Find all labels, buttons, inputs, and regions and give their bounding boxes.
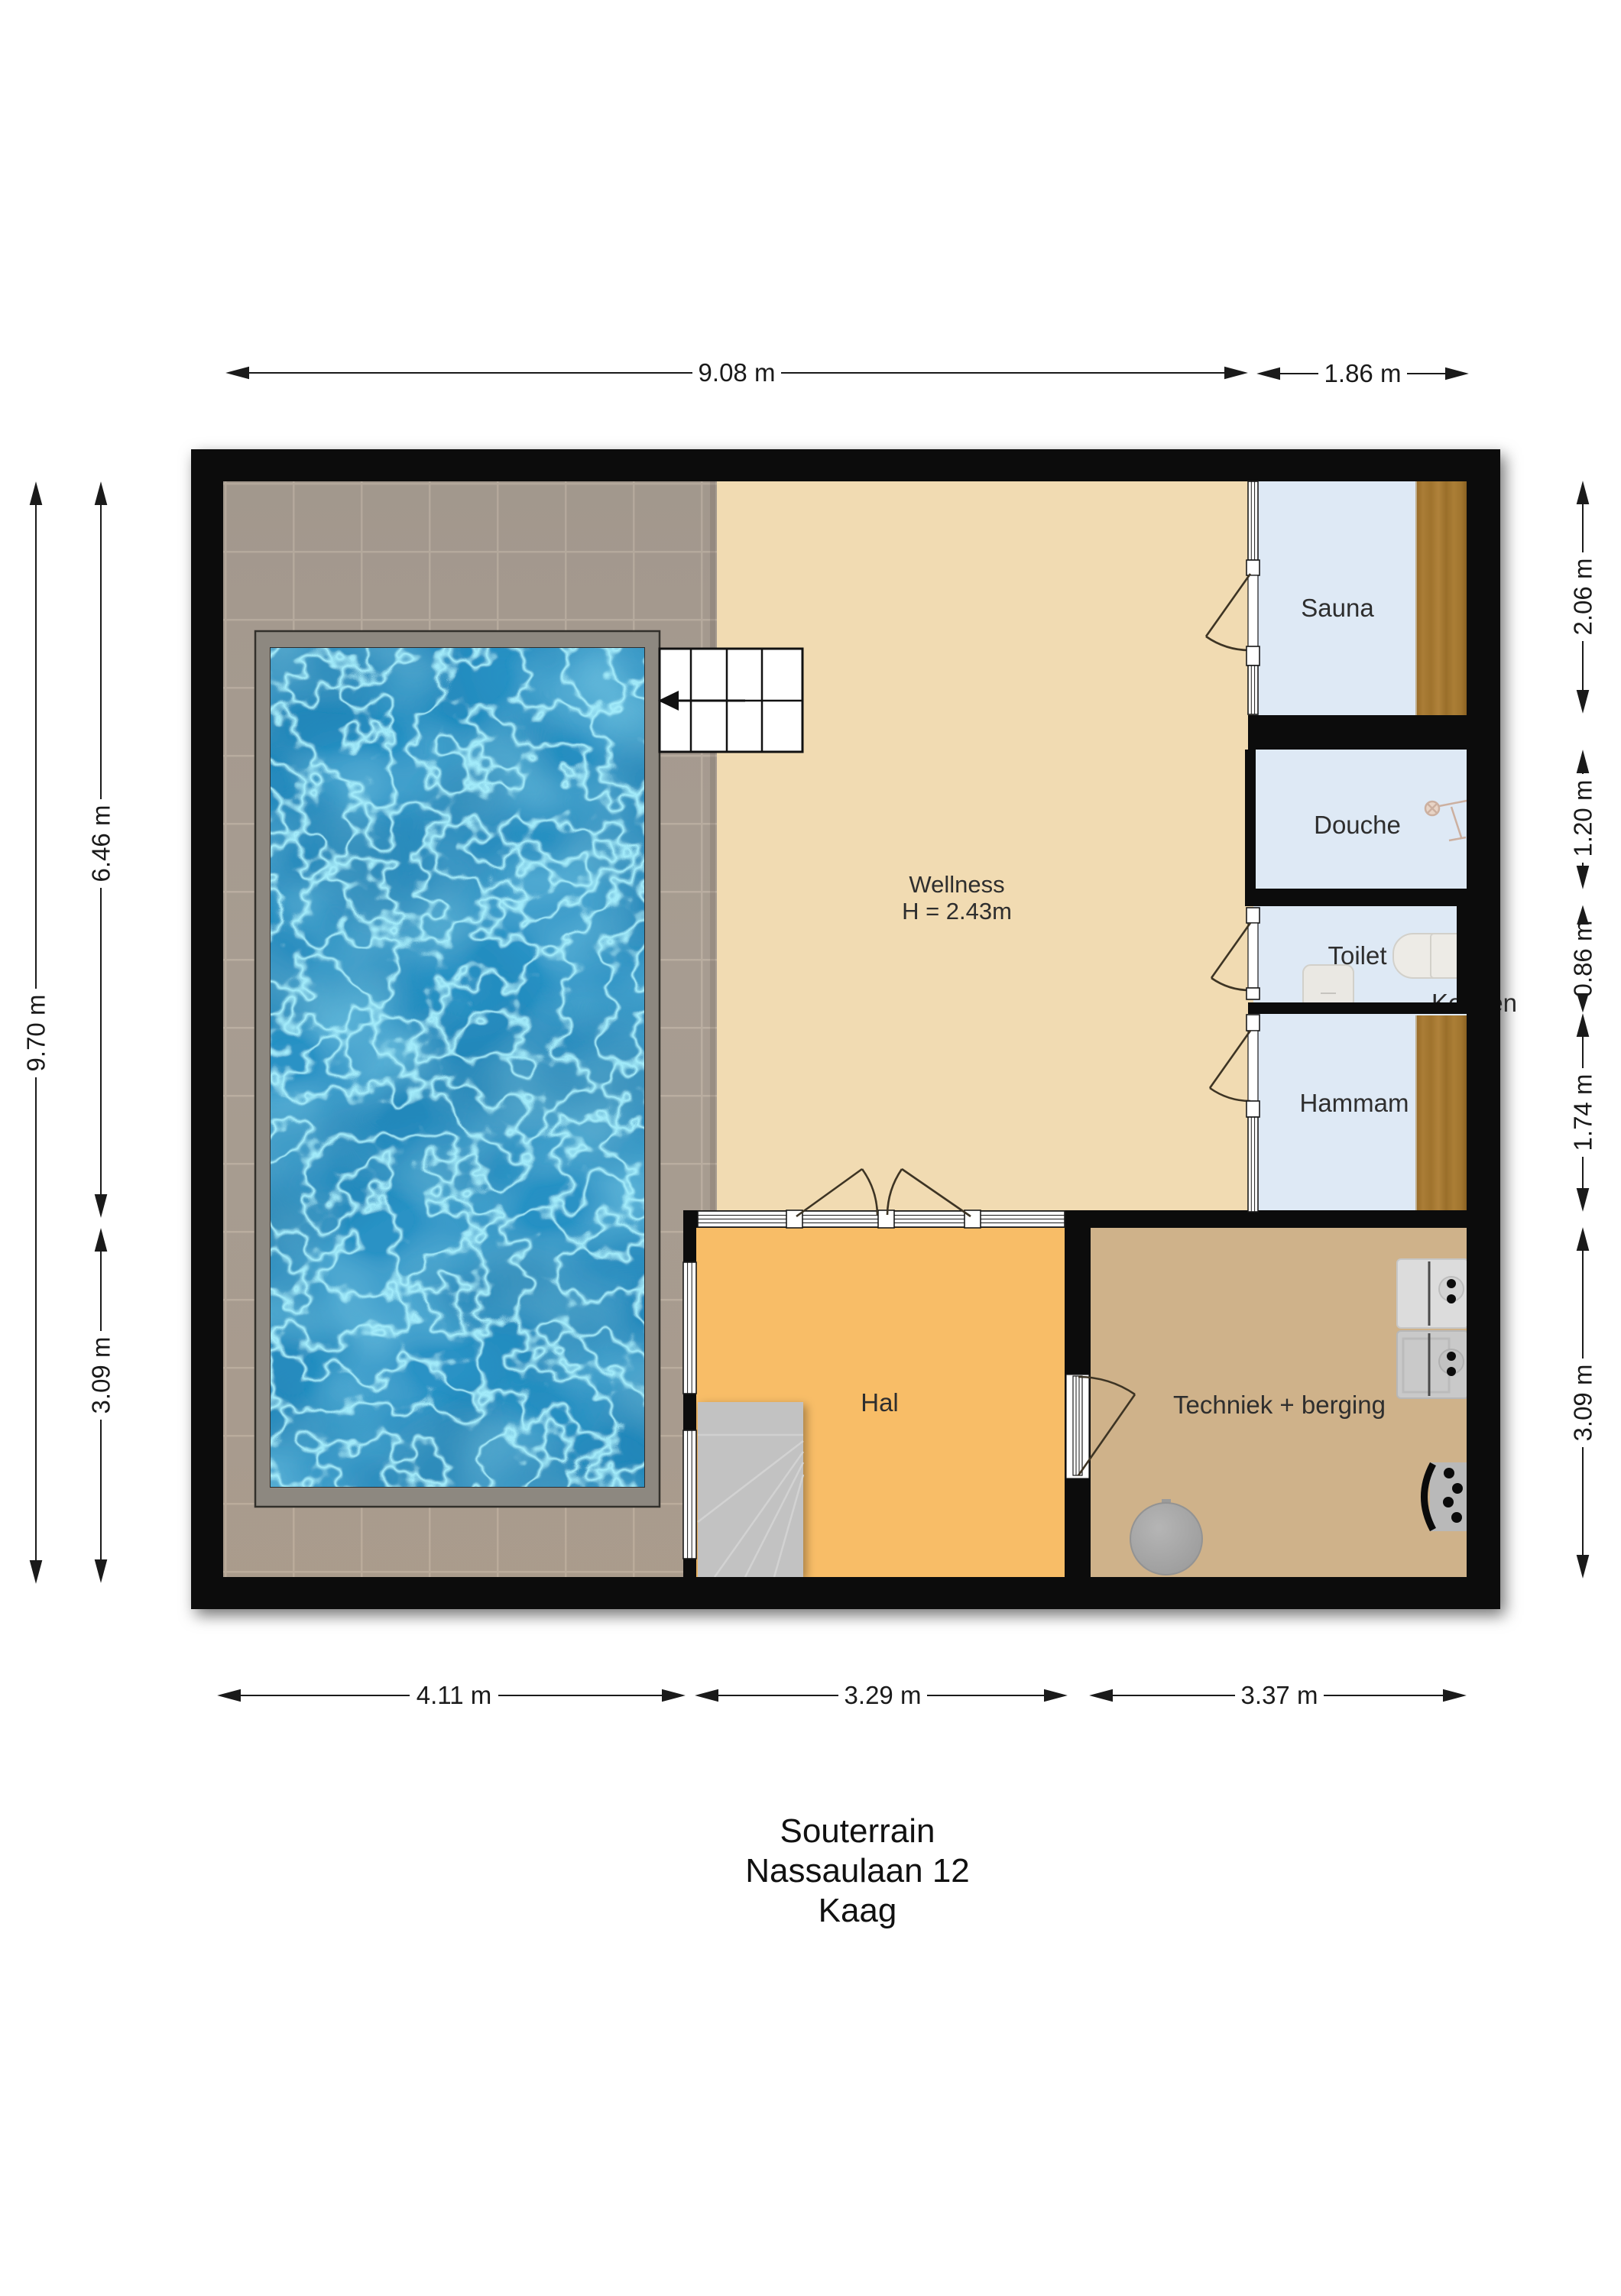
svg-text:Hammam: Hammam (1299, 1089, 1409, 1117)
svg-text:4.11 m: 4.11 m (417, 1681, 491, 1709)
svg-text:Wellness: Wellness (909, 871, 1004, 898)
svg-text:9.70 m: 9.70 m (22, 995, 50, 1072)
svg-text:Sauna: Sauna (1301, 594, 1374, 622)
svg-text:3.09 m: 3.09 m (1569, 1365, 1597, 1442)
svg-text:6.46 m: 6.46 m (87, 805, 115, 882)
svg-text:Hal: Hal (861, 1388, 899, 1417)
svg-text:Toilet: Toilet (1328, 941, 1386, 970)
svg-text:9.08 m: 9.08 m (699, 358, 776, 387)
svg-text:3.09 m: 3.09 m (87, 1337, 115, 1414)
svg-text:Douche: Douche (1314, 811, 1401, 839)
svg-text:0.86 m: 0.86 m (1569, 921, 1597, 998)
svg-text:Techniek + berging: Techniek + berging (1173, 1391, 1386, 1419)
svg-text:H = 2.43m: H = 2.43m (902, 898, 1012, 925)
svg-text:Nassaulaan 12: Nassaulaan 12 (745, 1852, 970, 1890)
svg-text:1.20 m: 1.20 m (1569, 780, 1597, 857)
svg-text:2.06 m: 2.06 m (1569, 559, 1597, 636)
svg-text:1.86 m: 1.86 m (1324, 359, 1402, 387)
svg-text:Kaag: Kaag (819, 1892, 897, 1929)
svg-text:3.29 m: 3.29 m (845, 1681, 922, 1709)
svg-text:1.74 m: 1.74 m (1569, 1074, 1597, 1151)
svg-text:Souterrain: Souterrain (780, 1812, 935, 1850)
svg-text:3.37 m: 3.37 m (1241, 1681, 1318, 1709)
